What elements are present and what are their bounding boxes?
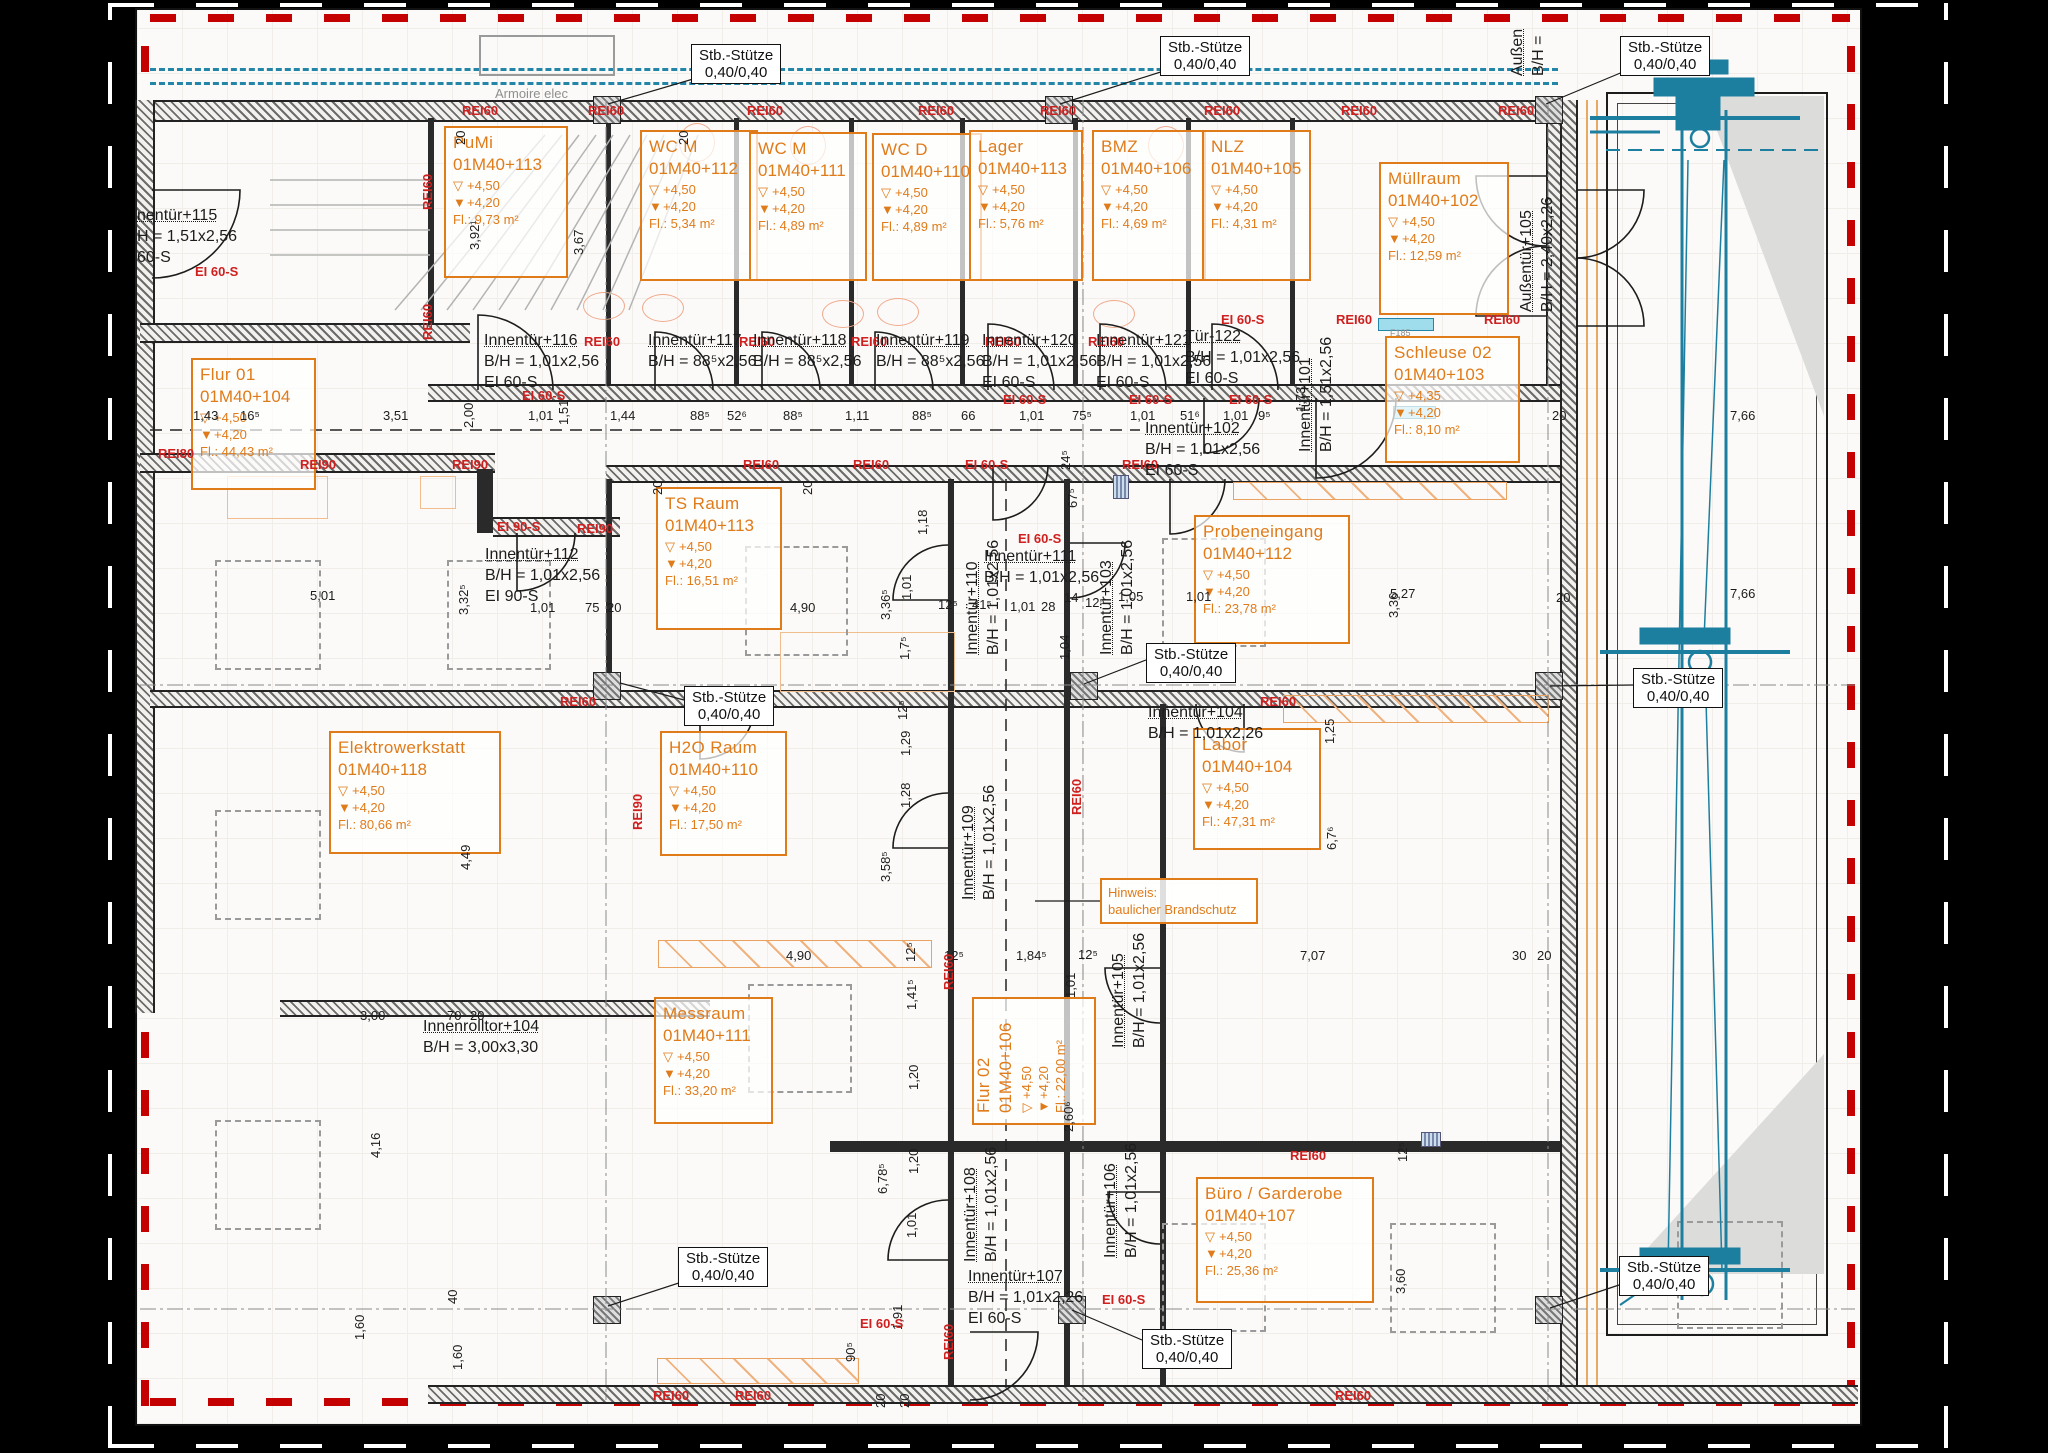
door-label[interactable]: Innentür+106B/H = 1,01x2,56 xyxy=(1100,1143,1142,1258)
level-triangle-icon: ▼ xyxy=(665,556,679,571)
level-lower: ▼+4,20 xyxy=(758,201,858,216)
door-label[interactable]: AußenB/H = xyxy=(1507,29,1549,76)
room-label-box[interactable]: NLZ01M40+105▽+4,50▼+4,20Fl.: 4,31 m² xyxy=(1202,130,1311,281)
lintel-tag: F185 xyxy=(1390,328,1411,338)
column-callout-label: Stb.-Stütze xyxy=(1154,646,1228,663)
dimension-text: 4,90 xyxy=(790,600,815,615)
door-name: Innentür+107 xyxy=(968,1266,1083,1287)
dimension-text: 1,7⁵ xyxy=(897,637,912,660)
sanitary-fixture xyxy=(642,294,684,322)
column-callout-size: 0,40/0,40 xyxy=(1627,1276,1701,1293)
door-name: Innentür+104 xyxy=(1148,702,1263,723)
fire-rating-label: REI60 xyxy=(853,457,889,472)
room-id: 01M40+103 xyxy=(1394,365,1511,385)
wall-segment xyxy=(428,118,434,330)
room-id: 01M40+113 xyxy=(453,155,559,175)
fire-rating-label: REI60 xyxy=(918,103,954,118)
dimension-text: 1,41⁵ xyxy=(904,979,919,1010)
room-area: Fl.: 4,89 m² xyxy=(758,218,858,233)
dimension-text: 88⁵ xyxy=(783,408,803,423)
room-name: Elektrowerkstatt xyxy=(338,738,492,758)
fire-rating-label: REI60 xyxy=(1040,103,1076,118)
level-lower: ▼+4,20 xyxy=(1388,231,1500,246)
column-callout-size: 0,40/0,40 xyxy=(699,64,773,81)
hinweis-line1: Hinweis: xyxy=(1108,884,1250,901)
radiator-icon xyxy=(1113,475,1129,499)
level-lower: ▼+4,20 xyxy=(200,427,307,442)
dimension-text: 1,84⁵ xyxy=(1016,948,1047,963)
door-size: B/H = 1,01x2,56 xyxy=(1121,1143,1142,1258)
room-area: Fl.: 17,50 m² xyxy=(669,817,778,832)
fire-rating-label: REI60 xyxy=(1498,103,1534,118)
fire-rating-label: REI80 xyxy=(158,446,194,461)
column-callout-label: Stb.-Stütze xyxy=(692,689,766,706)
fire-rating-label: REI60 xyxy=(941,1324,956,1360)
fire-rating-label: EI 90-S xyxy=(497,519,540,534)
room-label-box[interactable]: Schleuse 0201M40+103▽+4,35▼+4,20Fl.: 8,1… xyxy=(1385,336,1520,463)
door-size: B/H = 1,01x2,56 xyxy=(981,1147,1002,1262)
level-triangle-icon: ▽ xyxy=(338,783,352,799)
door-size: EI 60-S xyxy=(982,372,1097,393)
insulation-line-2 xyxy=(1596,100,1598,1390)
dimension-text: 12⁵ xyxy=(895,700,910,720)
column-callout[interactable]: Stb.-Stütze0,40/0,40 xyxy=(1160,36,1250,76)
dimension-text: 4,16 xyxy=(368,1133,383,1158)
fire-rating-label: REI60 xyxy=(420,174,435,210)
door-size: B/H = 1,01x2,56 xyxy=(1117,540,1138,655)
door-label[interactable]: Innentür+120B/H = 1,01x2,56EI 60-S xyxy=(982,330,1097,393)
door-name: Innentür+102 xyxy=(1145,418,1260,439)
door-size: B/H = 1,01x2,56 xyxy=(485,565,600,586)
column-callout-size: 0,40/0,40 xyxy=(1168,56,1242,73)
wall-segment xyxy=(830,1141,1560,1152)
fire-rating-label: REI60 xyxy=(1336,312,1372,327)
dimension-text: 30 xyxy=(1512,948,1526,963)
door-size: B/H = 1,01x2,56 xyxy=(1129,933,1150,1048)
level-upper: ▽+4,50 xyxy=(1203,567,1341,583)
level-triangle-icon: ▼ xyxy=(978,199,992,214)
door-label[interactable]: Innentür+118B/H = 88⁵x2,56 xyxy=(753,330,861,372)
door-size: B/H = 3,00x3,30 xyxy=(423,1037,539,1058)
level-triangle-icon: ▽ xyxy=(1203,567,1217,583)
column-callout-label: Stb.-Stütze xyxy=(686,1250,760,1267)
dimension-text: 1,18 xyxy=(915,510,930,535)
dimension-text: 4,90 xyxy=(786,948,811,963)
dimension-text: 12⁵ xyxy=(1078,947,1098,962)
door-label[interactable]: Innenrolltor+104B/H = 3,00x3,30 xyxy=(423,1016,539,1058)
level-triangle-icon: ▼ xyxy=(1036,1099,1051,1113)
level-lower: ▼+4,20 xyxy=(881,202,973,217)
wall-segment xyxy=(606,479,612,690)
room-label-box[interactable]: Probeneingang01M40+112▽+4,50▼+4,20Fl.: 2… xyxy=(1194,515,1350,644)
room-label-box[interactable]: PuMi01M40+113▽+4,50▼+4,20Fl.: 9,73 m² xyxy=(444,126,568,278)
level-triangle-icon: ▽ xyxy=(1205,1229,1219,1245)
dimension-text: 3,60 xyxy=(1393,1269,1408,1294)
dimension-text: 7,66 xyxy=(1730,586,1755,601)
door-name: Innentür+117 xyxy=(648,330,756,351)
wall-segment xyxy=(477,469,493,533)
column-callout[interactable]: Stb.-Stütze0,40/0,40 xyxy=(1142,1329,1232,1369)
bench-hatch-strip xyxy=(1233,482,1507,500)
room-label-box[interactable]: Lager01M40+113▽+4,50▼+4,20Fl.: 5,76 m² xyxy=(969,130,1083,281)
room-area: Fl.: 23,78 m² xyxy=(1203,601,1341,616)
room-name: Lager xyxy=(978,137,1074,157)
dimension-text: 1,20 xyxy=(906,1065,921,1090)
door-name: Außentür+105 xyxy=(1516,197,1537,312)
level-upper: ▽+4,50 xyxy=(978,182,1074,198)
column-callout[interactable]: Stb.-Stütze0,40/0,40 xyxy=(1633,668,1723,708)
dimension-text: 1,60 xyxy=(450,1345,465,1370)
door-size: B/H = xyxy=(1528,29,1549,76)
dimension-text: 52⁶ xyxy=(727,408,747,423)
dimension-text: 3,36 xyxy=(1386,593,1401,618)
room-name: PuMi xyxy=(453,133,559,153)
door-size: EI 60-S xyxy=(968,1308,1083,1329)
fire-rating-label: REI90 xyxy=(577,521,613,536)
level-triangle-icon: ▼ xyxy=(1211,199,1225,214)
door-size: EI 60-S xyxy=(1185,368,1300,389)
room-label-box[interactable]: Elektrowerkstatt01M40+118▽+4,50▼+4,20Fl.… xyxy=(329,731,501,854)
level-upper: ▽+4,50 xyxy=(663,1049,764,1065)
door-name: Innentür+120 xyxy=(982,330,1097,351)
door-label[interactable]: Innentür+112B/H = 1,01x2,56EI 90-S xyxy=(485,544,600,607)
level-triangle-icon: ▼ xyxy=(881,202,895,217)
level-triangle-icon: ▼ xyxy=(649,199,663,214)
dimension-text: 1,04 xyxy=(1057,635,1072,660)
room-id: 01M40+107 xyxy=(1205,1206,1365,1226)
level-upper: ▽+4,50 xyxy=(649,182,749,198)
level-triangle-icon: ▼ xyxy=(338,800,352,815)
level-triangle-icon: ▼ xyxy=(1388,231,1402,246)
ceiling-panel-outline xyxy=(215,560,321,670)
wall-segment xyxy=(948,479,954,1385)
room-area: Fl.: 4,69 m² xyxy=(1101,216,1197,231)
room-name: WC M xyxy=(758,139,858,159)
armoire-elec-label: Armoire elec xyxy=(495,86,568,101)
room-area: Fl.: 4,31 m² xyxy=(1211,216,1302,231)
room-id: 01M40+111 xyxy=(758,161,858,181)
level-upper: ▽+4,35 xyxy=(1394,388,1511,404)
fire-rating-label: EI 60-S xyxy=(1102,1292,1145,1307)
fire-rating-label: EI 60-S xyxy=(860,1316,903,1331)
level-lower: ▼+4,20 xyxy=(665,556,773,571)
fire-rating-label: EI 60-S xyxy=(1221,312,1264,327)
room-label-box[interactable]: WC M01M40+111▽+4,50▼+4,20Fl.: 4,89 m² xyxy=(749,132,867,281)
dimension-text: 12⁵ xyxy=(903,942,918,962)
sanitary-fixture xyxy=(583,292,625,320)
dimension-text: 67⁵ xyxy=(1065,488,1080,508)
room-area: Fl.: 12,59 m² xyxy=(1388,248,1500,263)
frame-dash-right xyxy=(1944,3,1948,1448)
door-size: B/H = 88⁵x2,56 xyxy=(753,351,861,372)
level-upper: ▽+4,50 xyxy=(338,783,492,799)
door-name: Tür-122 xyxy=(1185,326,1300,347)
door-size: B/H = 2,40x2,26 xyxy=(1537,197,1558,312)
fire-rating-label: REI60 xyxy=(653,1388,689,1403)
room-id: 01M40+118 xyxy=(338,760,492,780)
dimension-text: 20 xyxy=(873,1394,888,1408)
door-label[interactable]: Tür-122B/H = 1,01x2,56EI 60-S xyxy=(1185,326,1300,389)
room-name: WC D xyxy=(881,140,973,160)
door-name: Innentür+106 xyxy=(1100,1143,1121,1258)
dimension-text: 1,01 xyxy=(1010,599,1035,614)
fire-rating-label: EI 60-S xyxy=(965,457,1008,472)
hinweis-note[interactable]: Hinweis: baulicher Brandschutz xyxy=(1100,878,1258,924)
room-area: Fl.: 33,20 m² xyxy=(663,1083,764,1098)
dimension-text: 20 xyxy=(676,131,691,145)
dimension-text: 1,51 xyxy=(556,400,571,425)
room-id: 01M40+111 xyxy=(663,1026,764,1046)
room-area: Fl.: 16,51 m² xyxy=(665,573,773,588)
level-triangle-icon: ▽ xyxy=(758,184,772,200)
column-callout-label: Stb.-Stütze xyxy=(1627,1259,1701,1276)
level-lower: ▼+4,20 xyxy=(663,1066,764,1081)
column-callout[interactable]: Stb.-Stütze0,40/0,40 xyxy=(684,686,774,726)
level-upper: ▽+4,50 xyxy=(881,185,973,201)
room-name: Messraum xyxy=(663,1004,764,1024)
red-dash-right xyxy=(1847,14,1855,1406)
dimension-text: 1,29 xyxy=(898,731,913,756)
level-upper: ▽+4,50 xyxy=(453,178,559,194)
room-name: NLZ xyxy=(1211,137,1302,157)
room-area: Fl.: 22,00 m² xyxy=(1053,999,1068,1113)
bench-hatch-strip xyxy=(657,1358,859,1384)
dimension-text: 3,92¹ xyxy=(467,220,482,250)
door-label[interactable]: Innentür+110B/H = 1,01x2,56 xyxy=(962,540,1004,655)
armoire-elec-cabinet xyxy=(479,35,615,76)
level-triangle-icon: ▽ xyxy=(1019,1099,1035,1113)
door-label[interactable]: Innentür+103B/H = 1,01x2,56 xyxy=(1096,540,1138,655)
door-name: Innentür+105 xyxy=(1108,933,1129,1048)
level-lower: ▼+4,20 xyxy=(1202,797,1312,812)
concrete-column xyxy=(593,672,621,700)
dimension-text: 20 xyxy=(1552,408,1566,423)
dimension-text: 5,01 xyxy=(310,588,335,603)
column-callout-size: 0,40/0,40 xyxy=(1628,56,1702,73)
room-label-box[interactable]: Büro / Garderobe01M40+107▽+4,50▼+4,20Fl.… xyxy=(1196,1177,1374,1303)
room-label-box[interactable]: WC M01M40+112▽+4,50▼+4,20Fl.: 5,34 m² xyxy=(640,130,758,281)
door-label[interactable]: Innentür+101B/H = 1,51x2,56 xyxy=(1295,337,1337,452)
level-lower: ▼+4,20 xyxy=(1205,1246,1365,1261)
column-callout-label: Stb.-Stütze xyxy=(1641,671,1715,688)
room-id: 01M40+106 xyxy=(1101,159,1197,179)
door-size: B/H = 1,01x2,56 xyxy=(982,351,1097,372)
door-size: B/H = 1,01x2,56 xyxy=(1185,347,1300,368)
door-label[interactable]: Innentür+108B/H = 1,01x2,56 xyxy=(960,1147,1002,1262)
dimension-text: 24⁵ xyxy=(1058,450,1073,470)
room-id: 01M40+113 xyxy=(665,516,773,536)
column-callout-size: 0,40/0,40 xyxy=(686,1267,760,1284)
dimension-text: 12⁵ xyxy=(1395,1142,1410,1162)
room-id: 01M40+104 xyxy=(200,387,307,407)
fire-rating-label: REI60 xyxy=(941,954,956,990)
concrete-column xyxy=(1535,96,1563,124)
door-name: Innentür+119 xyxy=(876,330,984,351)
room-area: Fl.: 4,89 m² xyxy=(881,219,973,234)
door-size: B/H = 1,01x2,56 xyxy=(484,351,599,372)
fire-rating-label: REI60 xyxy=(560,694,596,709)
door-label[interactable]: Innentür+116B/H = 1,01x2,56EI 60-S xyxy=(484,330,599,393)
level-triangle-icon: ▼ xyxy=(1202,797,1216,812)
room-area: Fl.: 5,34 m² xyxy=(649,216,749,231)
dimension-text: 6,7⁶ xyxy=(1324,827,1339,850)
level-triangle-icon: ▼ xyxy=(453,195,467,210)
column-callout[interactable]: Stb.-Stütze0,40/0,40 xyxy=(1146,643,1236,683)
sanitary-fixture xyxy=(877,298,919,326)
room-area: Fl.: 44,43 m² xyxy=(200,444,307,459)
room-id: 01M40+113 xyxy=(978,159,1074,179)
room-area: Fl.: 25,36 m² xyxy=(1205,1263,1365,1278)
level-triangle-icon: ▽ xyxy=(649,182,663,198)
level-upper: ▽+4,50 xyxy=(1101,182,1197,198)
room-id: 01M40+105 xyxy=(1211,159,1302,179)
level-triangle-icon: ▽ xyxy=(978,182,992,198)
level-triangle-icon: ▽ xyxy=(1202,780,1216,796)
fire-rating-label: REI60 xyxy=(735,1388,771,1403)
door-name: Innentür+103 xyxy=(1096,540,1117,655)
dimension-text: 2,00 xyxy=(461,403,476,428)
fire-rating-label: REI60 xyxy=(1260,694,1296,709)
room-name: Müllraum xyxy=(1388,169,1500,189)
room-label-box[interactable]: H2O Raum01M40+110▽+4,50▼+4,20Fl.: 17,50 … xyxy=(660,731,787,856)
wall-segment xyxy=(1560,100,1578,1390)
column-callout-size: 0,40/0,40 xyxy=(1154,663,1228,680)
dimension-text: 40 xyxy=(445,1290,460,1304)
column-callout[interactable]: Stb.-Stütze0,40/0,40 xyxy=(1619,1256,1709,1296)
dimension-text: 3,00 xyxy=(360,1008,385,1023)
door-size: B/H = 1,01x2,56 xyxy=(983,540,1004,655)
door-label[interactable]: Innentür+117B/H = 88⁵x2,56 xyxy=(648,330,756,372)
level-triangle-icon: ▽ xyxy=(453,178,467,194)
insulation-line-1 xyxy=(1586,100,1588,1390)
level-triangle-icon: ▼ xyxy=(200,427,214,442)
door-label[interactable]: Innentür+104B/H = 1,01x2,26 xyxy=(1148,702,1263,744)
door-size: B/H = 1,01x2,56 xyxy=(979,785,1000,900)
hinweis-line2: baulicher Brandschutz xyxy=(1108,901,1250,918)
door-name: Innentür+101 xyxy=(1295,337,1316,452)
column-callout[interactable]: Stb.-Stütze0,40/0,40 xyxy=(1620,36,1710,76)
column-callout-label: Stb.-Stütze xyxy=(699,47,773,64)
fire-rating-label: EI 60-S xyxy=(1229,392,1272,407)
door-label[interactable]: Innentür+119B/H = 88⁵x2,56 xyxy=(876,330,984,372)
dimension-text: 20 xyxy=(1556,590,1570,605)
fire-rating-label: REI60 xyxy=(1069,779,1084,815)
dimension-text: 90⁵ xyxy=(843,1342,858,1362)
door-label[interactable]: nentür+115H = 1,51x2,5660-S xyxy=(137,205,237,268)
dimension-text: 20 xyxy=(800,481,815,495)
ceiling-panel-outline xyxy=(215,810,321,920)
dimension-text: 4,49 xyxy=(458,845,473,870)
door-size: B/H = 88⁵x2,56 xyxy=(648,351,756,372)
room-name: Probeneingang xyxy=(1203,522,1341,542)
fire-rating-label: EI 60-S xyxy=(1003,392,1046,407)
column-callout[interactable]: Stb.-Stütze0,40/0,40 xyxy=(691,44,781,84)
door-label[interactable]: Außentür+105B/H = 2,40x2,26 xyxy=(1516,197,1558,312)
dimension-text: 6,78⁵ xyxy=(875,1163,890,1194)
level-triangle-icon: ▽ xyxy=(663,1049,677,1065)
dimension-text: 66 xyxy=(961,408,975,423)
level-lower: ▼+4,20 xyxy=(1211,199,1302,214)
room-label-box[interactable]: TS Raum01M40+113▽+4,50▼+4,20Fl.: 16,51 m… xyxy=(656,487,782,630)
concrete-column xyxy=(593,1296,621,1324)
level-triangle-icon: ▽ xyxy=(1394,388,1408,404)
floorplan-canvas: Armoire elec F185 Hinweis: baulicher Bra… xyxy=(0,0,2048,1453)
column-callout-label: Stb.-Stütze xyxy=(1628,39,1702,56)
room-area: Fl.: 5,76 m² xyxy=(978,216,1074,231)
door-name: Innenrolltor+104 xyxy=(423,1016,539,1037)
wall-segment xyxy=(280,1000,710,1017)
sanitary-fixture xyxy=(822,300,864,328)
dimension-text: 1,43 xyxy=(193,408,218,423)
room-name: Flur 02 xyxy=(974,999,994,1113)
door-size: B/H = 1,51x2,56 xyxy=(1316,337,1337,452)
fire-rating-label: REI90 xyxy=(452,457,488,472)
dimension-text: 20 xyxy=(650,481,665,495)
column-callout[interactable]: Stb.-Stütze0,40/0,40 xyxy=(678,1247,768,1287)
dimension-text: 14 xyxy=(1064,590,1078,605)
frame-dash-top xyxy=(112,3,1948,7)
door-size: B/H = 1,01x2,26 xyxy=(968,1287,1083,1308)
dimension-text: 12⁵ xyxy=(938,597,958,612)
dimension-text: 28 xyxy=(1041,599,1055,614)
room-label-box[interactable]: Flur 0201M40+106▽+4,50▼+4,20Fl.: 22,00 m… xyxy=(972,997,1096,1125)
level-lower: ▼+4,20 xyxy=(669,800,778,815)
level-triangle-icon: ▼ xyxy=(758,201,772,216)
door-label[interactable]: Innentür+105B/H = 1,01x2,56 xyxy=(1108,933,1150,1048)
level-lower: ▼+4,20 xyxy=(1394,405,1511,420)
room-label-box[interactable]: WC D01M40+110▽+4,50▼+4,20Fl.: 4,89 m² xyxy=(872,133,982,281)
fire-rating-label: REI60 xyxy=(1335,1388,1371,1403)
frame-dash-left xyxy=(108,3,112,1448)
level-lower: ▼+4,20 xyxy=(1036,999,1051,1113)
room-name: Büro / Garderobe xyxy=(1205,1184,1365,1204)
room-name: Schleuse 02 xyxy=(1394,343,1511,363)
level-lower: ▼+4,20 xyxy=(453,195,559,210)
level-triangle-icon: ▽ xyxy=(1101,182,1115,198)
door-size: EI 90-S xyxy=(485,586,600,607)
room-name: H2O Raum xyxy=(669,738,778,758)
door-size: B/H = 88⁵x2,56 xyxy=(876,351,984,372)
level-triangle-icon: ▽ xyxy=(1211,182,1225,198)
room-label-box[interactable]: BMZ01M40+106▽+4,50▼+4,20Fl.: 4,69 m² xyxy=(1092,130,1206,281)
level-upper: ▽+4,50 xyxy=(1019,999,1035,1113)
door-name: Innentür+112 xyxy=(485,544,600,565)
level-lower: ▼+4,20 xyxy=(649,199,749,214)
room-id: 01M40+104 xyxy=(1202,757,1312,777)
door-label[interactable]: Innentür+109B/H = 1,01x2,56 xyxy=(958,785,1000,900)
room-label-box[interactable]: Messraum01M40+111▽+4,50▼+4,20Fl.: 33,20 … xyxy=(654,997,773,1124)
door-size: EI 60-S xyxy=(1145,460,1260,481)
level-triangle-icon: ▼ xyxy=(1101,199,1115,214)
fire-rating-label: REI90 xyxy=(630,794,645,830)
room-name: TS Raum xyxy=(665,494,773,514)
room-name: BMZ xyxy=(1101,137,1197,157)
duct-line-1 xyxy=(150,68,1558,71)
fire-rating-label: EI 60-S xyxy=(1018,531,1061,546)
room-label-box[interactable]: Müllraum01M40+102▽+4,50▼+4,20Fl.: 12,59 … xyxy=(1379,162,1509,315)
door-label[interactable]: Innentür+102B/H = 1,01x2,56EI 60-S xyxy=(1145,418,1260,481)
level-upper: ▽+4,50 xyxy=(1211,182,1302,198)
room-label-box[interactable]: Labor01M40+104▽+4,50▼+4,20Fl.: 47,31 m² xyxy=(1193,728,1321,850)
door-label[interactable]: Innentür+107B/H = 1,01x2,26EI 60-S xyxy=(968,1266,1083,1329)
door-size: 60-S xyxy=(137,247,237,268)
level-triangle-icon: ▼ xyxy=(663,1066,677,1081)
door-name: Außen xyxy=(1507,29,1528,76)
room-id: 01M40+110 xyxy=(881,162,973,182)
room-name: Flur 01 xyxy=(200,365,307,385)
room-label-box[interactable]: Flur 0101M40+104▽+4,50▼+4,20Fl.: 44,43 m… xyxy=(191,358,316,490)
dimension-text: 1,28 xyxy=(898,783,913,808)
